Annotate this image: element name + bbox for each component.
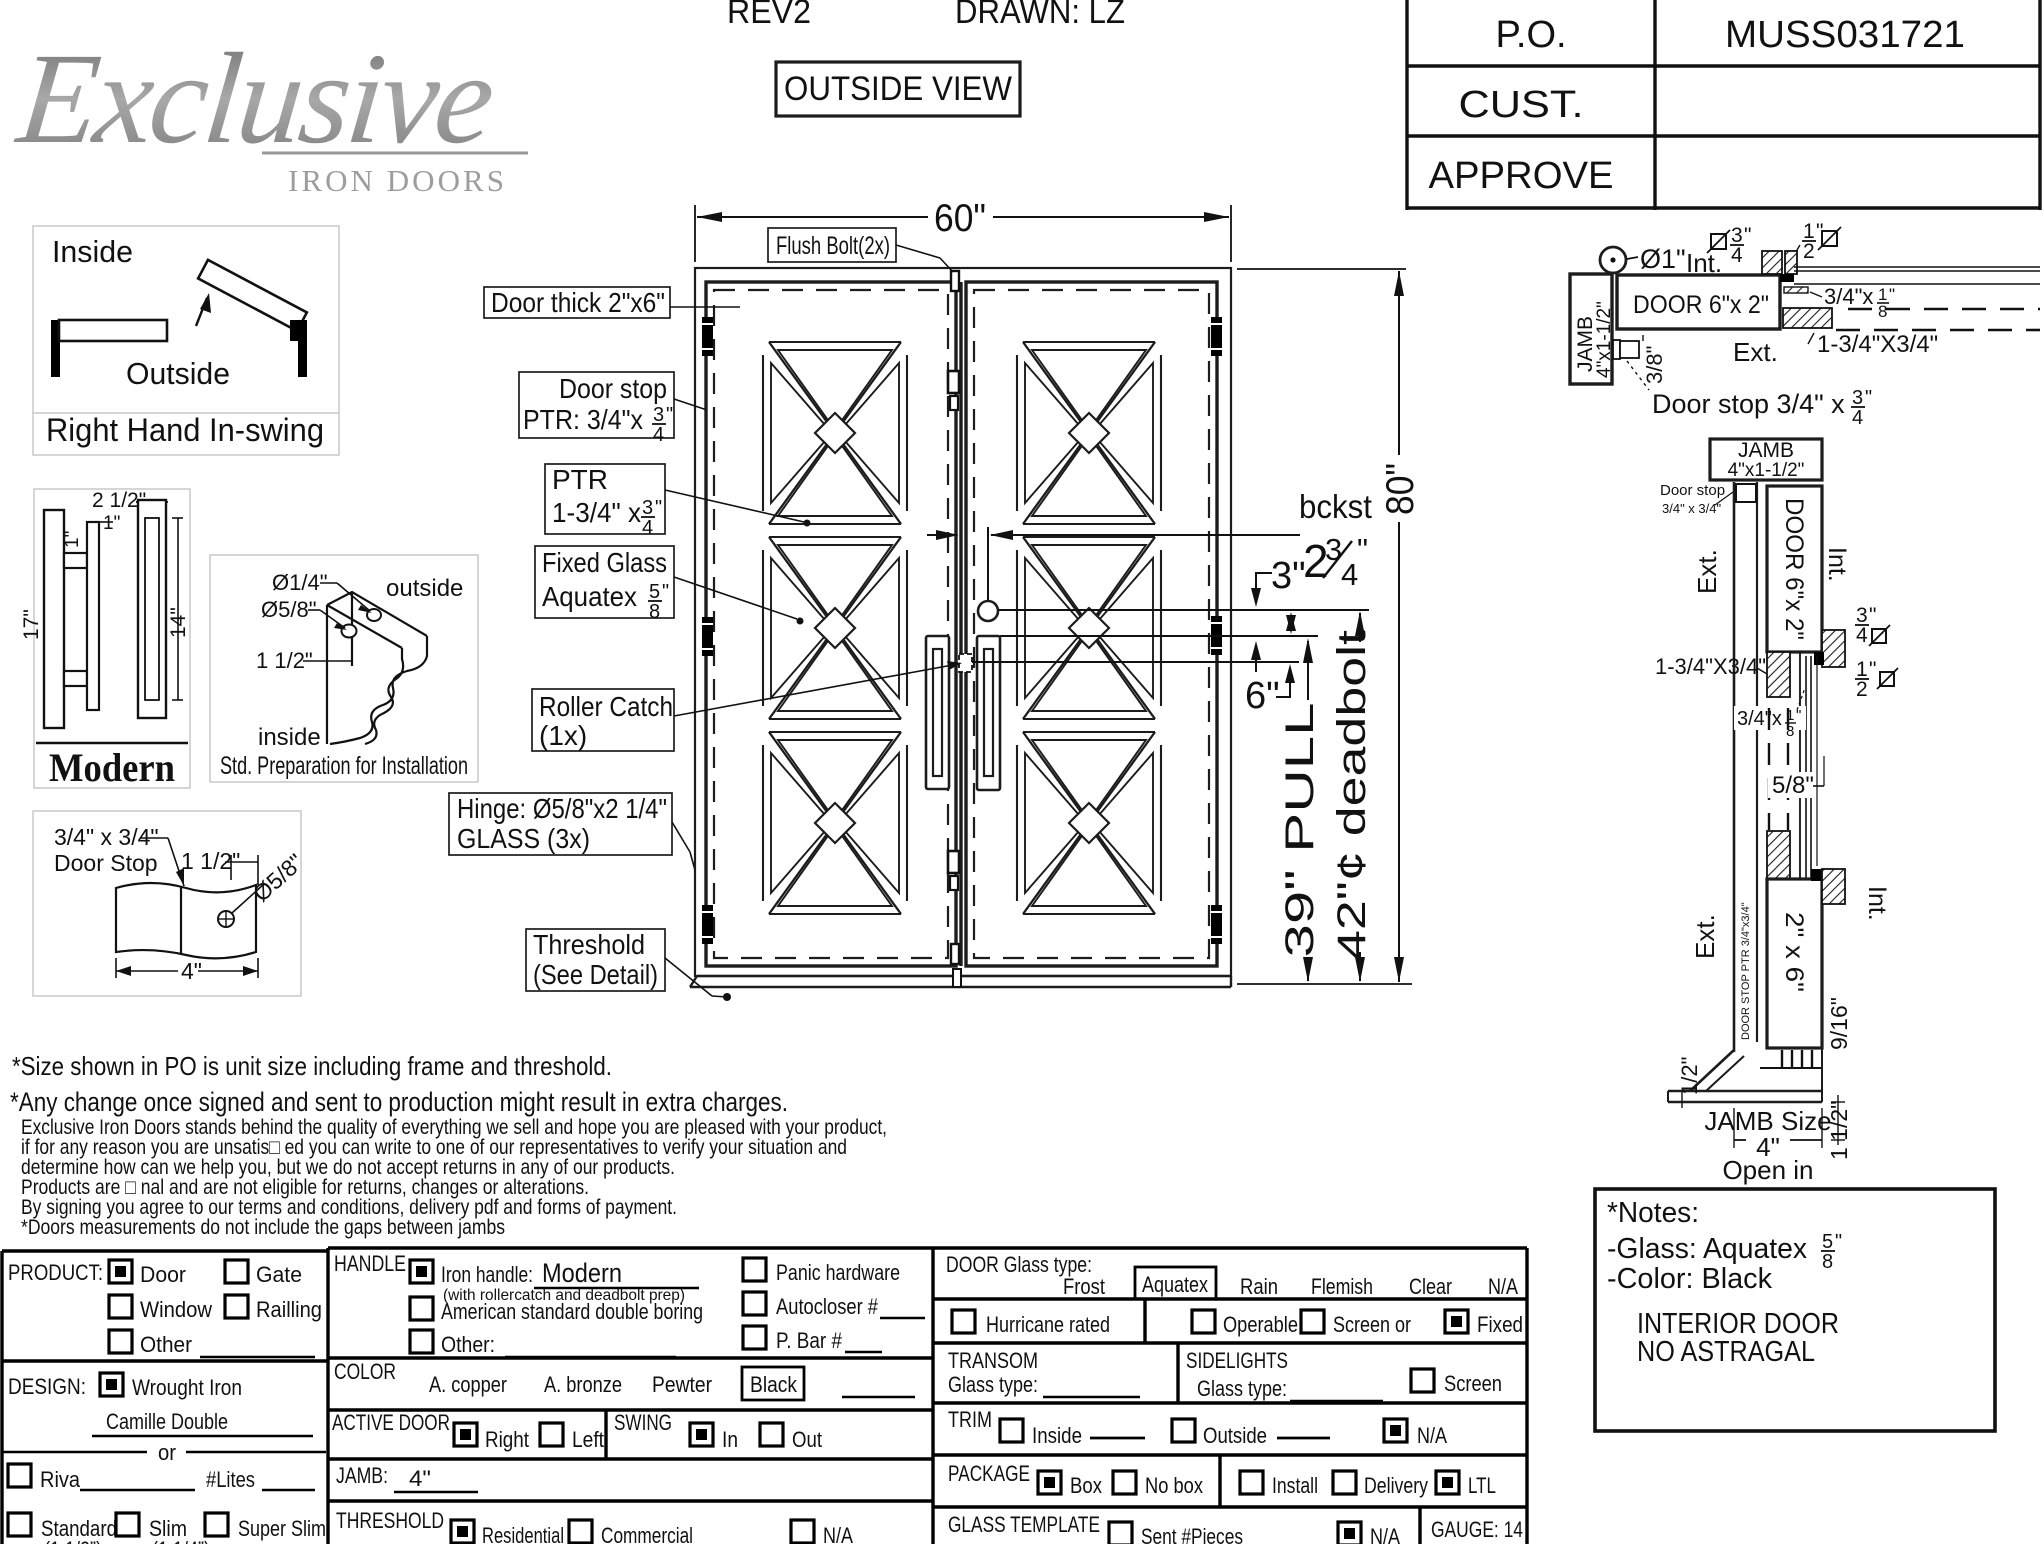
svg-text:4"x1-1/2": 4"x1-1/2" (1594, 301, 1615, 378)
svg-text:HANDLE: HANDLE (334, 1251, 406, 1276)
svg-text:Gate: Gate (256, 1262, 302, 1287)
svg-text:GLASS TEMPLATE: GLASS TEMPLATE (948, 1512, 1100, 1537)
svg-text:8: 8 (649, 601, 660, 623)
svg-text:Box: Box (1070, 1473, 1102, 1498)
svg-text:4": 4" (181, 958, 202, 984)
svg-text:N/A: N/A (1370, 1524, 1400, 1544)
svg-text:COLOR: COLOR (334, 1359, 396, 1384)
svg-text:CUST.: CUST. (1459, 84, 1584, 126)
svg-text:Delivery: Delivery (1364, 1473, 1428, 1498)
svg-text:Ext.: Ext. (1733, 337, 1778, 367)
svg-text:Left: Left (572, 1427, 604, 1452)
svg-text:5/8": 5/8" (1772, 772, 1814, 799)
svg-text:Residential: Residential (482, 1523, 564, 1544)
svg-text:Modern: Modern (542, 1258, 622, 1288)
svg-text:APPROVE: APPROVE (1429, 155, 1614, 197)
svg-text:PTR: 3/4"x: PTR: 3/4"x (523, 404, 643, 435)
svg-text:4": 4" (409, 1466, 431, 1491)
svg-text:N/A: N/A (1488, 1274, 1518, 1299)
svg-text:Screen: Screen (1444, 1371, 1502, 1396)
svg-text:Frost: Frost (1063, 1274, 1105, 1299)
svg-text:Other: Other (140, 1332, 192, 1357)
svg-text:Operable: Operable (1223, 1312, 1298, 1337)
svg-text:3/8": 3/8" (1642, 346, 1667, 384)
svg-text:1-3/4"X3/4": 1-3/4"X3/4" (1817, 331, 1938, 358)
svg-text:(1 1/4”): (1 1/4”) (152, 1537, 210, 1544)
svg-text:42"¢ deadbolt: 42"¢ deadbolt (1330, 630, 1374, 960)
svg-text:Door stop: Door stop (1660, 482, 1725, 499)
svg-text:Install: Install (1272, 1473, 1318, 1498)
svg-text:Ø1": Ø1" (1640, 244, 1686, 274)
svg-text:": " (666, 404, 673, 426)
svg-text:Rain: Rain (1240, 1274, 1278, 1299)
svg-text:Modern: Modern (49, 745, 175, 790)
svg-text:Right Hand In-swing: Right Hand In-swing (46, 412, 324, 448)
svg-text:Aquatex: Aquatex (542, 581, 637, 612)
svg-text:3/4" x 3/4": 3/4" x 3/4" (54, 824, 159, 850)
svg-text:*Any change once signed and se: *Any change once signed and sent to prod… (10, 1087, 788, 1117)
svg-text:Glass type:: Glass type: (1197, 1376, 1287, 1401)
svg-text:Screen or: Screen or (1333, 1312, 1411, 1337)
svg-text:Ext.: Ext. (1692, 549, 1722, 594)
svg-text:8: 8 (1878, 302, 1887, 321)
svg-text:Out: Out (792, 1427, 822, 1452)
svg-text:IRON DOORS: IRON DOORS (288, 163, 504, 198)
svg-text:Right: Right (485, 1427, 529, 1452)
svg-text:Black: Black (750, 1372, 798, 1397)
svg-text:": " (1744, 224, 1751, 247)
svg-text:Camille Double: Camille Double (106, 1409, 228, 1434)
svg-text:ACTIVE DOOR: ACTIVE DOOR (332, 1410, 450, 1435)
svg-text:Threshold: Threshold (533, 929, 645, 960)
svg-text:": " (1835, 1231, 1842, 1253)
svg-text:*Size shown in PO is unit size: *Size shown in PO is unit size including… (12, 1051, 612, 1081)
svg-text:DOOR 6"x 2": DOOR 6"x 2" (1633, 291, 1769, 319)
svg-text:39" PULL: 39" PULL (1278, 703, 1322, 958)
svg-text:Fixed: Fixed (1477, 1312, 1523, 1337)
svg-text:or: or (158, 1440, 176, 1465)
svg-text:Ø1/4": Ø1/4" (272, 570, 328, 595)
svg-text:Clear: Clear (1409, 1274, 1452, 1299)
svg-text:Wrought Iron: Wrought Iron (132, 1375, 242, 1400)
svg-text:Door Stop: Door Stop (54, 850, 158, 876)
svg-text:80": 80" (1379, 463, 1422, 515)
svg-text:N/A: N/A (1417, 1423, 1447, 1448)
svg-text:4: 4 (642, 517, 653, 539)
svg-text:LTL: LTL (1468, 1473, 1496, 1498)
svg-text:bckst: bckst (1299, 488, 1372, 525)
svg-text:Aquatex: Aquatex (1142, 1272, 1208, 1297)
svg-text:": " (1865, 387, 1872, 409)
svg-text:4"x1-1/2": 4"x1-1/2" (1728, 460, 1805, 481)
svg-text:-Color: Black: -Color: Black (1607, 1263, 1772, 1295)
svg-text:Inside: Inside (1032, 1423, 1082, 1448)
svg-text:P.O.: P.O. (1495, 14, 1566, 56)
svg-text:SIDELIGHTS: SIDELIGHTS (1186, 1348, 1288, 1373)
svg-text:Int.: Int. (1823, 547, 1851, 582)
svg-text:2: 2 (1856, 678, 1868, 701)
svg-text:1": 1" (62, 531, 83, 548)
svg-text:Fixed Glass: Fixed Glass (542, 547, 667, 578)
svg-text:Pewter: Pewter (652, 1372, 712, 1397)
svg-text:17": 17" (20, 609, 43, 640)
svg-text:REV2: REV2 (727, 0, 811, 31)
svg-text:N/A: N/A (823, 1523, 853, 1544)
svg-text:Sent #Pieces: Sent #Pieces (1141, 1524, 1243, 1544)
svg-text:(See Detail): (See Detail) (533, 959, 658, 990)
svg-text:Flemish: Flemish (1311, 1274, 1373, 1299)
svg-text:6": 6" (1245, 675, 1280, 717)
svg-text:9/16": 9/16" (1826, 997, 1852, 1050)
svg-text:Hurricane rated: Hurricane rated (986, 1312, 1110, 1337)
svg-text:Door: Door (140, 1262, 186, 1287)
svg-text:4: 4 (1341, 557, 1358, 592)
svg-text:Int.: Int. (1863, 886, 1891, 921)
svg-text:": " (662, 581, 669, 603)
svg-text:Commercial: Commercial (601, 1523, 693, 1544)
svg-text:DESIGN:: DESIGN: (8, 1374, 86, 1399)
svg-text:3: 3 (1852, 387, 1863, 409)
svg-text:": " (1889, 285, 1895, 304)
svg-text:Door stop 3/4" x: Door stop 3/4" x (1652, 389, 1845, 419)
svg-text:": " (1869, 604, 1876, 627)
svg-text:Autocloser #: Autocloser # (776, 1294, 879, 1319)
svg-text:2: 2 (1803, 240, 1815, 263)
svg-text:14": 14" (167, 607, 190, 638)
svg-text:4: 4 (1856, 624, 1868, 647)
svg-text:3/4"x: 3/4"x (1824, 284, 1873, 309)
svg-text:No box: No box (1145, 1473, 1203, 1498)
svg-text:": " (655, 497, 662, 519)
svg-text:Glass type:: Glass type: (948, 1372, 1038, 1397)
svg-text:GLASS (3x): GLASS (3x) (457, 823, 590, 854)
svg-text:#Lites: #Lites (206, 1467, 255, 1492)
svg-text:(1x): (1x) (539, 720, 587, 751)
svg-text:Outside: Outside (1203, 1423, 1267, 1448)
svg-text:A. bronze: A. bronze (544, 1372, 622, 1397)
svg-text:2" x 6": 2" x 6" (1780, 912, 1808, 992)
svg-text:P. Bar #: P. Bar # (776, 1328, 843, 1353)
svg-text:Door thick 2"x6": Door thick 2"x6" (491, 287, 665, 318)
svg-text:Other:: Other: (441, 1332, 495, 1357)
svg-text:*Doors measurements do not inc: *Doors measurements do not include the g… (21, 1216, 505, 1239)
svg-text:GAUGE: 14: GAUGE: 14 (1431, 1517, 1523, 1542)
svg-text:Std. Preparation for Installat: Std. Preparation for Installation (220, 752, 468, 780)
svg-text:(1 1/2”): (1 1/2”) (44, 1537, 102, 1544)
svg-text:4: 4 (653, 424, 664, 446)
svg-text:Int.: Int. (1686, 248, 1722, 278)
svg-text:*Notes:: *Notes: (1607, 1197, 1699, 1229)
svg-text:DRAWN: LZ: DRAWN: LZ (955, 0, 1125, 31)
svg-text:Panic hardware: Panic hardware (776, 1260, 900, 1285)
svg-text:PTR: PTR (552, 464, 608, 495)
svg-text:8: 8 (1822, 1251, 1833, 1273)
svg-text:60": 60" (934, 197, 986, 240)
svg-text:TRIM: TRIM (948, 1407, 992, 1432)
svg-text:5: 5 (1822, 1231, 1833, 1253)
svg-text:1-3/4"X3/4": 1-3/4"X3/4" (1655, 654, 1766, 679)
svg-text:NO ASTRAGAL: NO ASTRAGAL (1637, 1336, 1815, 1368)
svg-text:Iron handle:: Iron handle: (441, 1262, 533, 1287)
svg-text:Exclusive: Exclusive (10, 27, 498, 171)
svg-text:THRESHOLD: THRESHOLD (336, 1508, 444, 1533)
svg-text:TRANSOM: TRANSOM (948, 1348, 1038, 1373)
svg-text:Hinge: Ø5/8"x2 1/4": Hinge: Ø5/8"x2 1/4" (457, 793, 667, 824)
svg-text:": " (1357, 532, 1368, 567)
svg-text:3: 3 (1325, 532, 1342, 567)
svg-text:PACKAGE: PACKAGE (948, 1461, 1030, 1486)
svg-text:Window: Window (140, 1297, 212, 1322)
svg-text:1/2": 1/2" (1677, 1057, 1702, 1095)
svg-text:1 1/2": 1 1/2" (1826, 1101, 1852, 1160)
svg-text:MUSS031721: MUSS031721 (1725, 14, 1965, 56)
svg-text:DOOR STOP PTR 3/4"x3/4": DOOR STOP PTR 3/4"x3/4" (1740, 902, 1752, 1040)
svg-text:1": 1" (103, 513, 120, 534)
svg-text:JAMB: JAMB (1738, 439, 1794, 462)
svg-text:-Glass: Aquatex: -Glass: Aquatex (1607, 1233, 1807, 1265)
svg-text:OUTSIDE VIEW: OUTSIDE VIEW (784, 70, 1012, 108)
svg-text:Flush Bolt(2x): Flush Bolt(2x) (776, 232, 890, 260)
svg-text:4: 4 (1731, 244, 1743, 267)
svg-text:Riva: Riva (40, 1467, 81, 1492)
svg-text:PRODUCT:: PRODUCT: (8, 1260, 103, 1285)
svg-text:Door stop: Door stop (559, 373, 667, 404)
svg-text:": " (1869, 658, 1876, 681)
svg-text:Super Slim: Super Slim (238, 1516, 326, 1541)
svg-text:4: 4 (1852, 407, 1863, 429)
svg-text:inside: inside (258, 724, 321, 751)
svg-text:Inside: Inside (52, 234, 133, 269)
svg-text:Outside: Outside (126, 356, 230, 391)
svg-text:3/4" x 3/4": 3/4" x 3/4" (1662, 501, 1721, 516)
svg-text:A. copper: A. copper (429, 1372, 507, 1397)
svg-text:3: 3 (642, 497, 653, 519)
svg-text:SWING: SWING (614, 1410, 672, 1435)
svg-text:American standard double borin: American standard double boring (441, 1299, 703, 1324)
svg-text:3: 3 (653, 404, 664, 426)
svg-text:1-3/4" x: 1-3/4" x (552, 497, 641, 528)
svg-text:JAMB:: JAMB: (336, 1463, 388, 1488)
svg-text:Open in: Open in (1722, 1155, 1813, 1185)
svg-text:5: 5 (649, 581, 660, 603)
svg-text:3/4"x: 3/4"x (1737, 708, 1782, 730)
svg-text:DOOR 6"x 2": DOOR 6"x 2" (1780, 498, 1808, 640)
svg-text:Roller Catch: Roller Catch (539, 691, 673, 722)
svg-text:Ext.: Ext. (1690, 914, 1720, 959)
svg-text:In: In (722, 1427, 738, 1452)
svg-text:Railling: Railling (256, 1297, 322, 1322)
svg-text:outside: outside (386, 575, 463, 602)
svg-text:3": 3" (1271, 555, 1306, 597)
